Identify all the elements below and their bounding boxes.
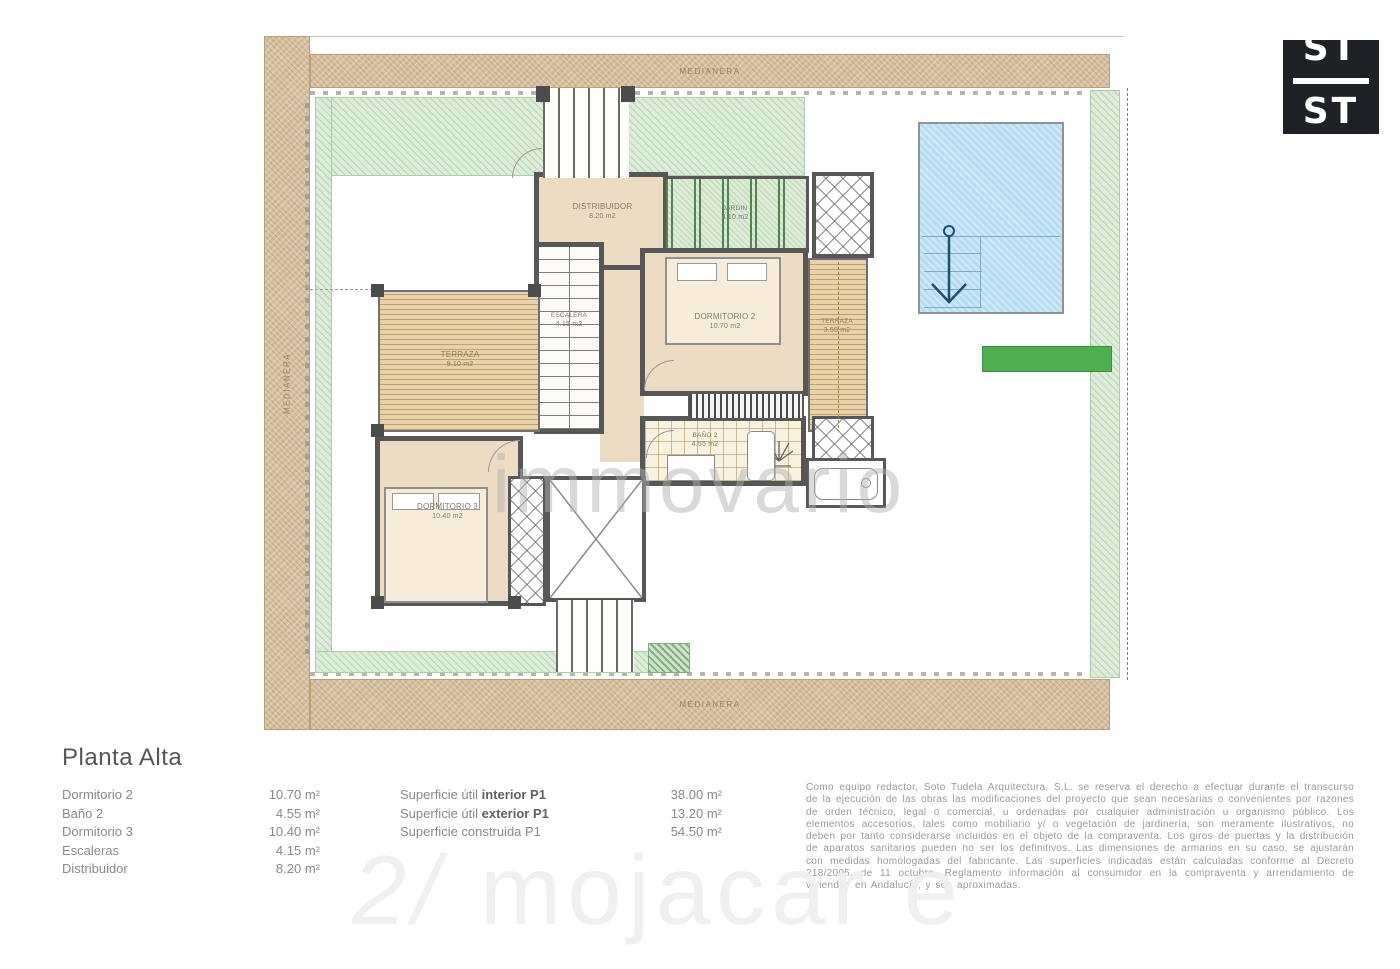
surface-label: Superficie útil exterior P1 xyxy=(400,806,549,825)
page-title: Planta Alta xyxy=(62,744,182,772)
watermark-immovario: immovario xyxy=(492,438,906,532)
plot-boundary-line xyxy=(264,36,1124,37)
room-name: Escaleras xyxy=(62,843,119,862)
entry-stairs-top xyxy=(543,88,629,178)
wall-pier xyxy=(371,284,384,297)
list-item: Baño 2 4.55 m² xyxy=(62,806,320,825)
wall-pier xyxy=(371,424,384,437)
plot-dashed-boundary-right xyxy=(1127,88,1128,680)
watermark-mojacar: 2/mojacar e xyxy=(352,834,964,947)
wall-pier xyxy=(536,86,550,102)
room-area: 10.40 m² xyxy=(269,824,320,843)
garden-strip-left xyxy=(315,97,332,655)
watermark-logo-icon: 2/ xyxy=(352,835,446,945)
label-escalera: ESCALERA 4.15 m2 xyxy=(537,312,601,329)
medianera-label-bottom: MEDIANERA xyxy=(311,680,1109,729)
list-item: Superficie útil interior P1 38.00 m² xyxy=(400,787,722,806)
corridor xyxy=(600,262,644,462)
pool-depth-anchor-icon xyxy=(930,224,974,316)
label-dormitorio-2: DORMITORIO 2 10.70 m2 xyxy=(655,312,795,332)
label-terraza-left: TERRAZA 9.10 m2 xyxy=(400,350,520,370)
garden-patch-bottom xyxy=(648,643,690,673)
logo-text-top: ST xyxy=(1303,40,1359,67)
list-item: Dormitorio 3 10.40 m² xyxy=(62,824,320,843)
floorplan-page: { "logo": { "line1": "ST", "line2": "ST"… xyxy=(0,0,1400,969)
architect-logo: ST ST xyxy=(1283,40,1379,134)
wall-pier xyxy=(621,86,635,102)
measure-line xyxy=(310,289,378,290)
terraza-right-centerline xyxy=(838,262,839,428)
wall-pier xyxy=(508,596,521,609)
room-area: 10.70 m² xyxy=(269,787,320,806)
room-area: 8.20 m² xyxy=(276,861,320,880)
medianera-band-left: MEDIANERA xyxy=(264,36,310,730)
pillow xyxy=(727,263,767,281)
surface-value: 13.20 m² xyxy=(671,806,722,825)
medianera-label-top: MEDIANERA xyxy=(311,55,1109,87)
medianera-band-top: MEDIANERA xyxy=(310,54,1110,88)
swimming-pool xyxy=(918,122,1064,314)
closet-sliding xyxy=(688,392,804,420)
surface-value: 38.00 m² xyxy=(671,787,722,806)
list-item: Superficie útil exterior P1 13.20 m² xyxy=(400,806,722,825)
room-name: Dormitorio 2 xyxy=(62,787,133,806)
logo-divider xyxy=(1293,78,1369,84)
watermark-text: mojacar e xyxy=(480,835,964,945)
label-distribuidor: DISTRIBUIDOR 8.20 m2 xyxy=(545,202,660,222)
wall-pier xyxy=(371,596,384,609)
room-area: 4.55 m² xyxy=(276,806,320,825)
pillow xyxy=(677,263,717,281)
surface-label: Superficie útil interior P1 xyxy=(400,787,546,806)
wall-pier xyxy=(528,284,541,297)
label-terraza-right: TERRAZA 3.50 m2 xyxy=(806,318,868,335)
room-escalera xyxy=(534,242,604,434)
list-item: Dormitorio 2 10.70 m² xyxy=(62,787,320,806)
shaft-box-top xyxy=(812,172,874,258)
logo-text-bottom: ST xyxy=(1303,94,1359,130)
room-name: Dormitorio 3 xyxy=(62,824,133,843)
room-areas-list: Dormitorio 2 10.70 m² Baño 2 4.55 m² Dor… xyxy=(62,787,320,880)
dimension-ticks-top xyxy=(310,91,1110,95)
label-jardin: JARDIN 4.10 m2 xyxy=(690,205,780,222)
room-area: 4.15 m² xyxy=(276,843,320,862)
garden-strip-right xyxy=(1090,90,1120,678)
grass-bar xyxy=(982,346,1112,372)
room-name: Baño 2 xyxy=(62,806,103,825)
list-item: Distribuidor 8.20 m² xyxy=(62,861,320,880)
entry-stairs-bottom xyxy=(556,600,634,672)
dimension-ticks-left xyxy=(305,96,309,654)
medianera-band-bottom: MEDIANERA xyxy=(310,679,1110,730)
room-name: Distribuidor xyxy=(62,861,128,880)
medianera-label-left: MEDIANERA xyxy=(265,37,309,729)
list-item: Escaleras 4.15 m² xyxy=(62,843,320,862)
